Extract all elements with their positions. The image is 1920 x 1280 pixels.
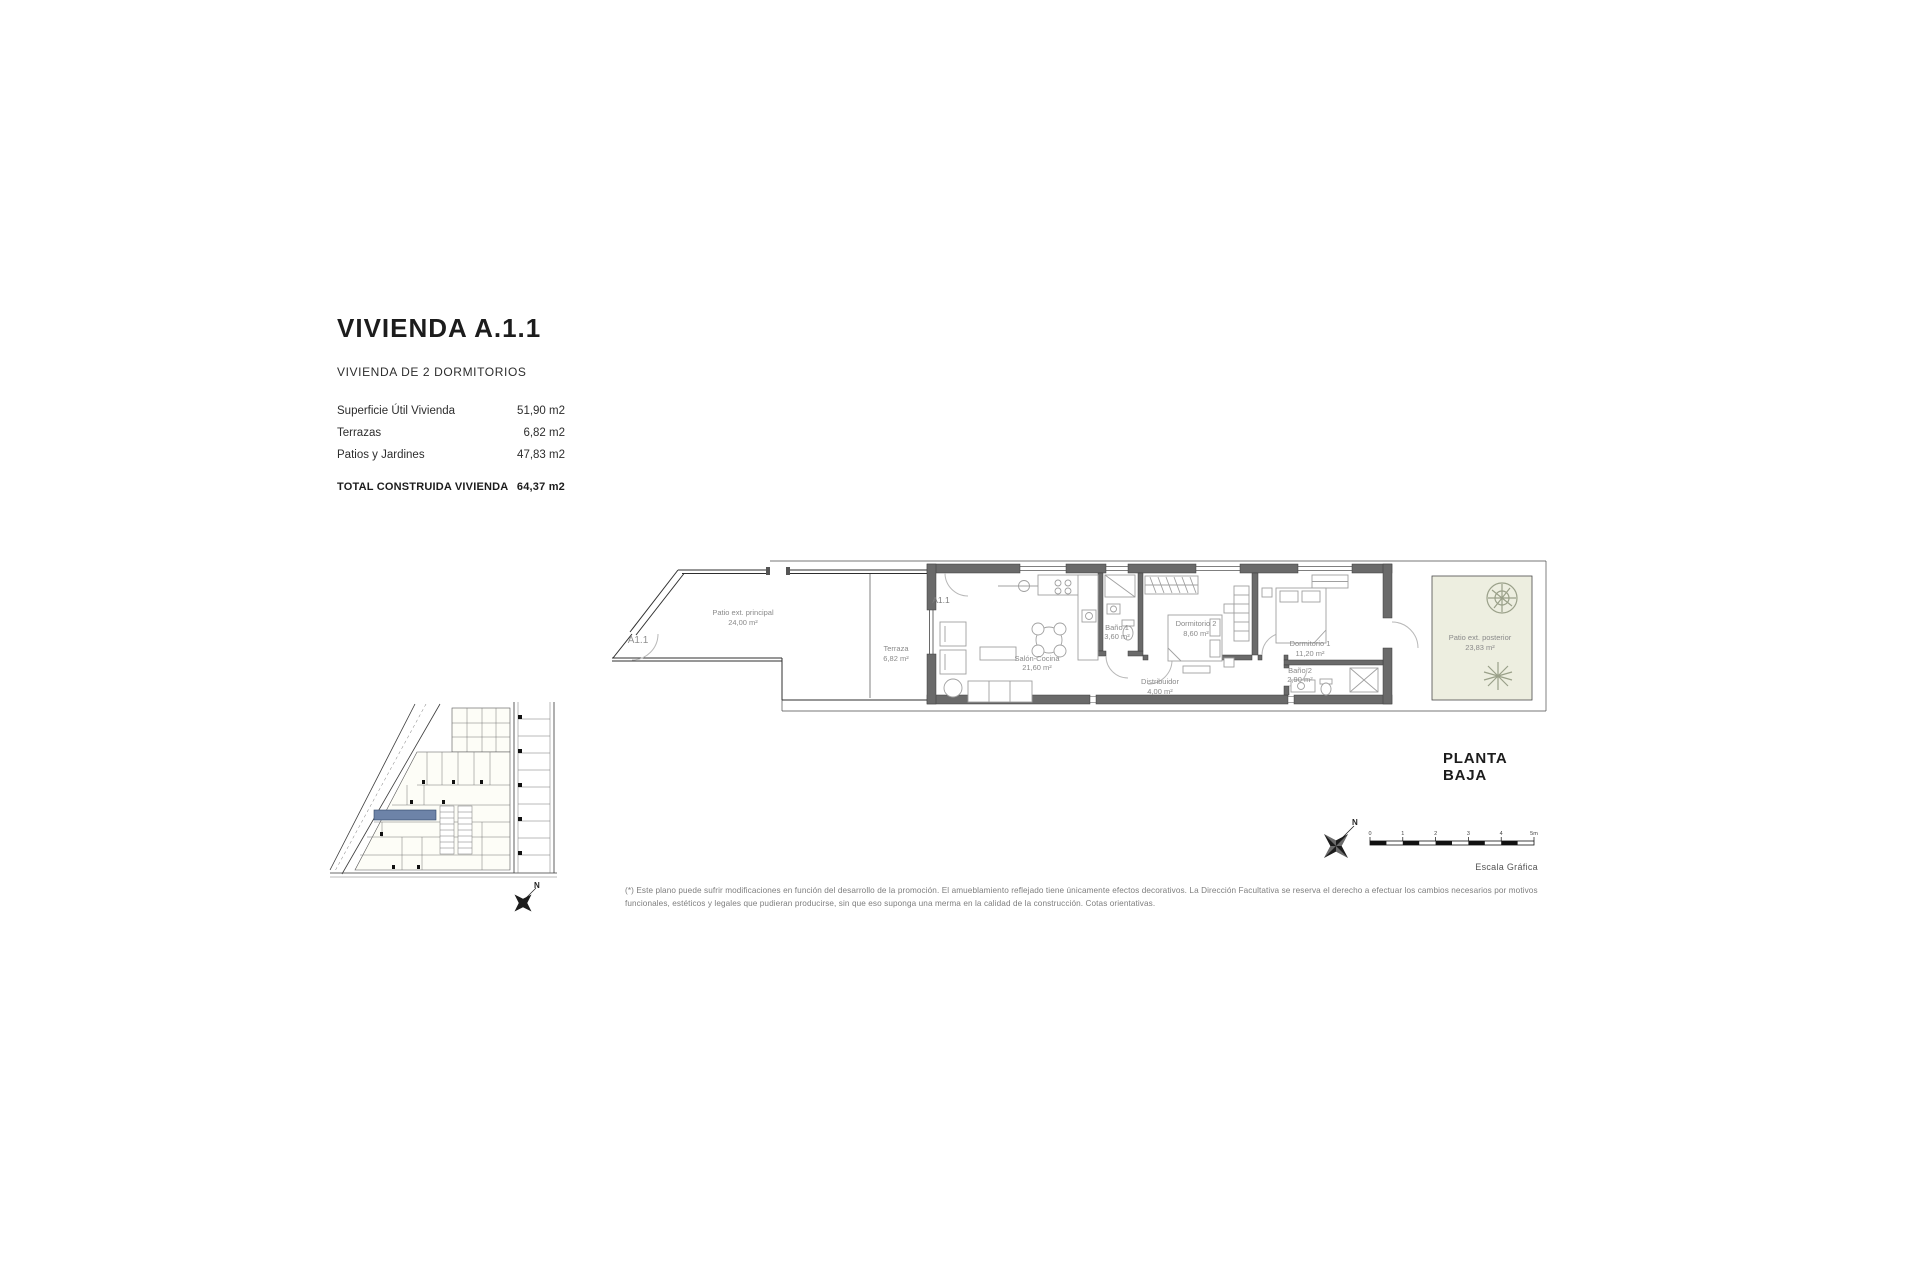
table-row: Patios y Jardines 47,83 m2 bbox=[337, 444, 565, 466]
highlighted-unit bbox=[374, 810, 436, 820]
scale-caption: Escala Gráfica bbox=[1448, 862, 1538, 872]
scale-bar: 0 1 2 3 4 5m bbox=[1366, 828, 1542, 859]
svg-text:3,60 m²: 3,60 m² bbox=[1104, 632, 1130, 641]
svg-text:4: 4 bbox=[1500, 831, 1503, 837]
room-label-bano-2: Baño 2 2,90 m² bbox=[1287, 666, 1313, 684]
svg-text:5m: 5m bbox=[1530, 831, 1538, 837]
svg-text:8,60 m²: 8,60 m² bbox=[1183, 629, 1209, 638]
floor-plan-drawing: A1.1 A1.1 Patio ext. principal 24,00 m² … bbox=[600, 548, 1550, 732]
total-value: 64,37 m2 bbox=[517, 481, 565, 493]
svg-text:21,60 m²: 21,60 m² bbox=[1022, 663, 1052, 672]
area-row-label: Superficie Útil Vivienda bbox=[337, 400, 455, 422]
svg-text:23,83 m²: 23,83 m² bbox=[1465, 643, 1495, 652]
room-label-dormitorio-1: Dormitorio 1 11,20 m² bbox=[1290, 639, 1331, 658]
area-row-value: 51,90 m2 bbox=[517, 400, 565, 422]
svg-text:Patio ext. principal: Patio ext. principal bbox=[712, 608, 774, 617]
room-label-patio-principal: Patio ext. principal 24,00 m² bbox=[712, 608, 774, 627]
unit-gate-label: A1.1 bbox=[628, 635, 649, 646]
svg-text:N: N bbox=[534, 881, 540, 890]
svg-text:2: 2 bbox=[1434, 831, 1437, 837]
svg-text:Patio ext. posterior: Patio ext. posterior bbox=[1449, 633, 1512, 642]
svg-text:11,20 m²: 11,20 m² bbox=[1295, 649, 1325, 658]
area-table: Superficie Útil Vivienda 51,90 m2 Terraz… bbox=[337, 400, 565, 493]
area-row-value: 47,83 m2 bbox=[517, 444, 565, 466]
svg-text:Dormitorio 1: Dormitorio 1 bbox=[1290, 639, 1331, 648]
table-row: Terrazas 6,82 m2 bbox=[337, 422, 565, 444]
room-label-bano-1: Baño 1 3,60 m² bbox=[1104, 623, 1130, 641]
area-row-label: Patios y Jardines bbox=[337, 444, 425, 466]
title-block: VIVIENDA A.1.1 VIVIENDA DE 2 DORMITORIOS… bbox=[337, 313, 577, 493]
area-row-value: 6,82 m2 bbox=[523, 422, 565, 444]
table-total-row: TOTAL CONSTRUIDA VIVIENDA 64,37 m2 bbox=[337, 481, 565, 493]
floor-plan: A1.1 A1.1 Patio ext. principal 24,00 m² … bbox=[600, 548, 1550, 732]
svg-text:1: 1 bbox=[1401, 831, 1404, 837]
svg-text:Terraza: Terraza bbox=[883, 644, 909, 653]
svg-text:2,90 m²: 2,90 m² bbox=[1287, 675, 1313, 684]
plan-sheet: VIVIENDA A.1.1 VIVIENDA DE 2 DORMITORIOS… bbox=[0, 0, 1920, 1280]
tree-icon bbox=[1487, 583, 1517, 613]
svg-text:3: 3 bbox=[1467, 831, 1470, 837]
svg-text:Baño 1: Baño 1 bbox=[1105, 623, 1129, 632]
svg-text:4,00 m²: 4,00 m² bbox=[1147, 687, 1173, 696]
patio-principal-walls bbox=[612, 567, 927, 700]
total-label: TOTAL CONSTRUIDA VIVIENDA bbox=[337, 481, 508, 493]
svg-text:Dormitorio 2: Dormitorio 2 bbox=[1176, 619, 1217, 628]
table-row: Superficie Útil Vivienda 51,90 m2 bbox=[337, 400, 565, 422]
svg-text:Salón-Cocina: Salón-Cocina bbox=[1014, 654, 1060, 663]
site-key-plan bbox=[322, 700, 562, 890]
floor-label: PLANTA BAJA bbox=[1443, 750, 1553, 784]
svg-text:N: N bbox=[1352, 818, 1358, 827]
disclaimer-text: (*) Este plano puede sufrir modificacion… bbox=[625, 885, 1570, 910]
area-row-label: Terrazas bbox=[337, 422, 381, 444]
keyplan-north-compass-icon: N bbox=[503, 880, 543, 927]
page-title: VIVIENDA A.1.1 bbox=[337, 313, 577, 344]
room-label-salon-cocina: Salón-Cocina 21,60 m² bbox=[1014, 654, 1060, 672]
unit-entrance-label: A1.1 bbox=[932, 595, 950, 605]
room-label-terraza: Terraza 6,82 m² bbox=[883, 644, 909, 663]
north-compass-icon: N bbox=[1308, 816, 1364, 877]
svg-text:6,82 m²: 6,82 m² bbox=[883, 654, 909, 663]
svg-text:24,00 m²: 24,00 m² bbox=[728, 618, 758, 627]
svg-text:0: 0 bbox=[1368, 831, 1371, 837]
svg-text:Distribuidor: Distribuidor bbox=[1141, 677, 1179, 686]
page-subtitle: VIVIENDA DE 2 DORMITORIOS bbox=[337, 365, 577, 379]
svg-text:Baño 2: Baño 2 bbox=[1288, 666, 1312, 675]
room-label-distribuidor: Distribuidor 4,00 m² bbox=[1141, 677, 1179, 696]
